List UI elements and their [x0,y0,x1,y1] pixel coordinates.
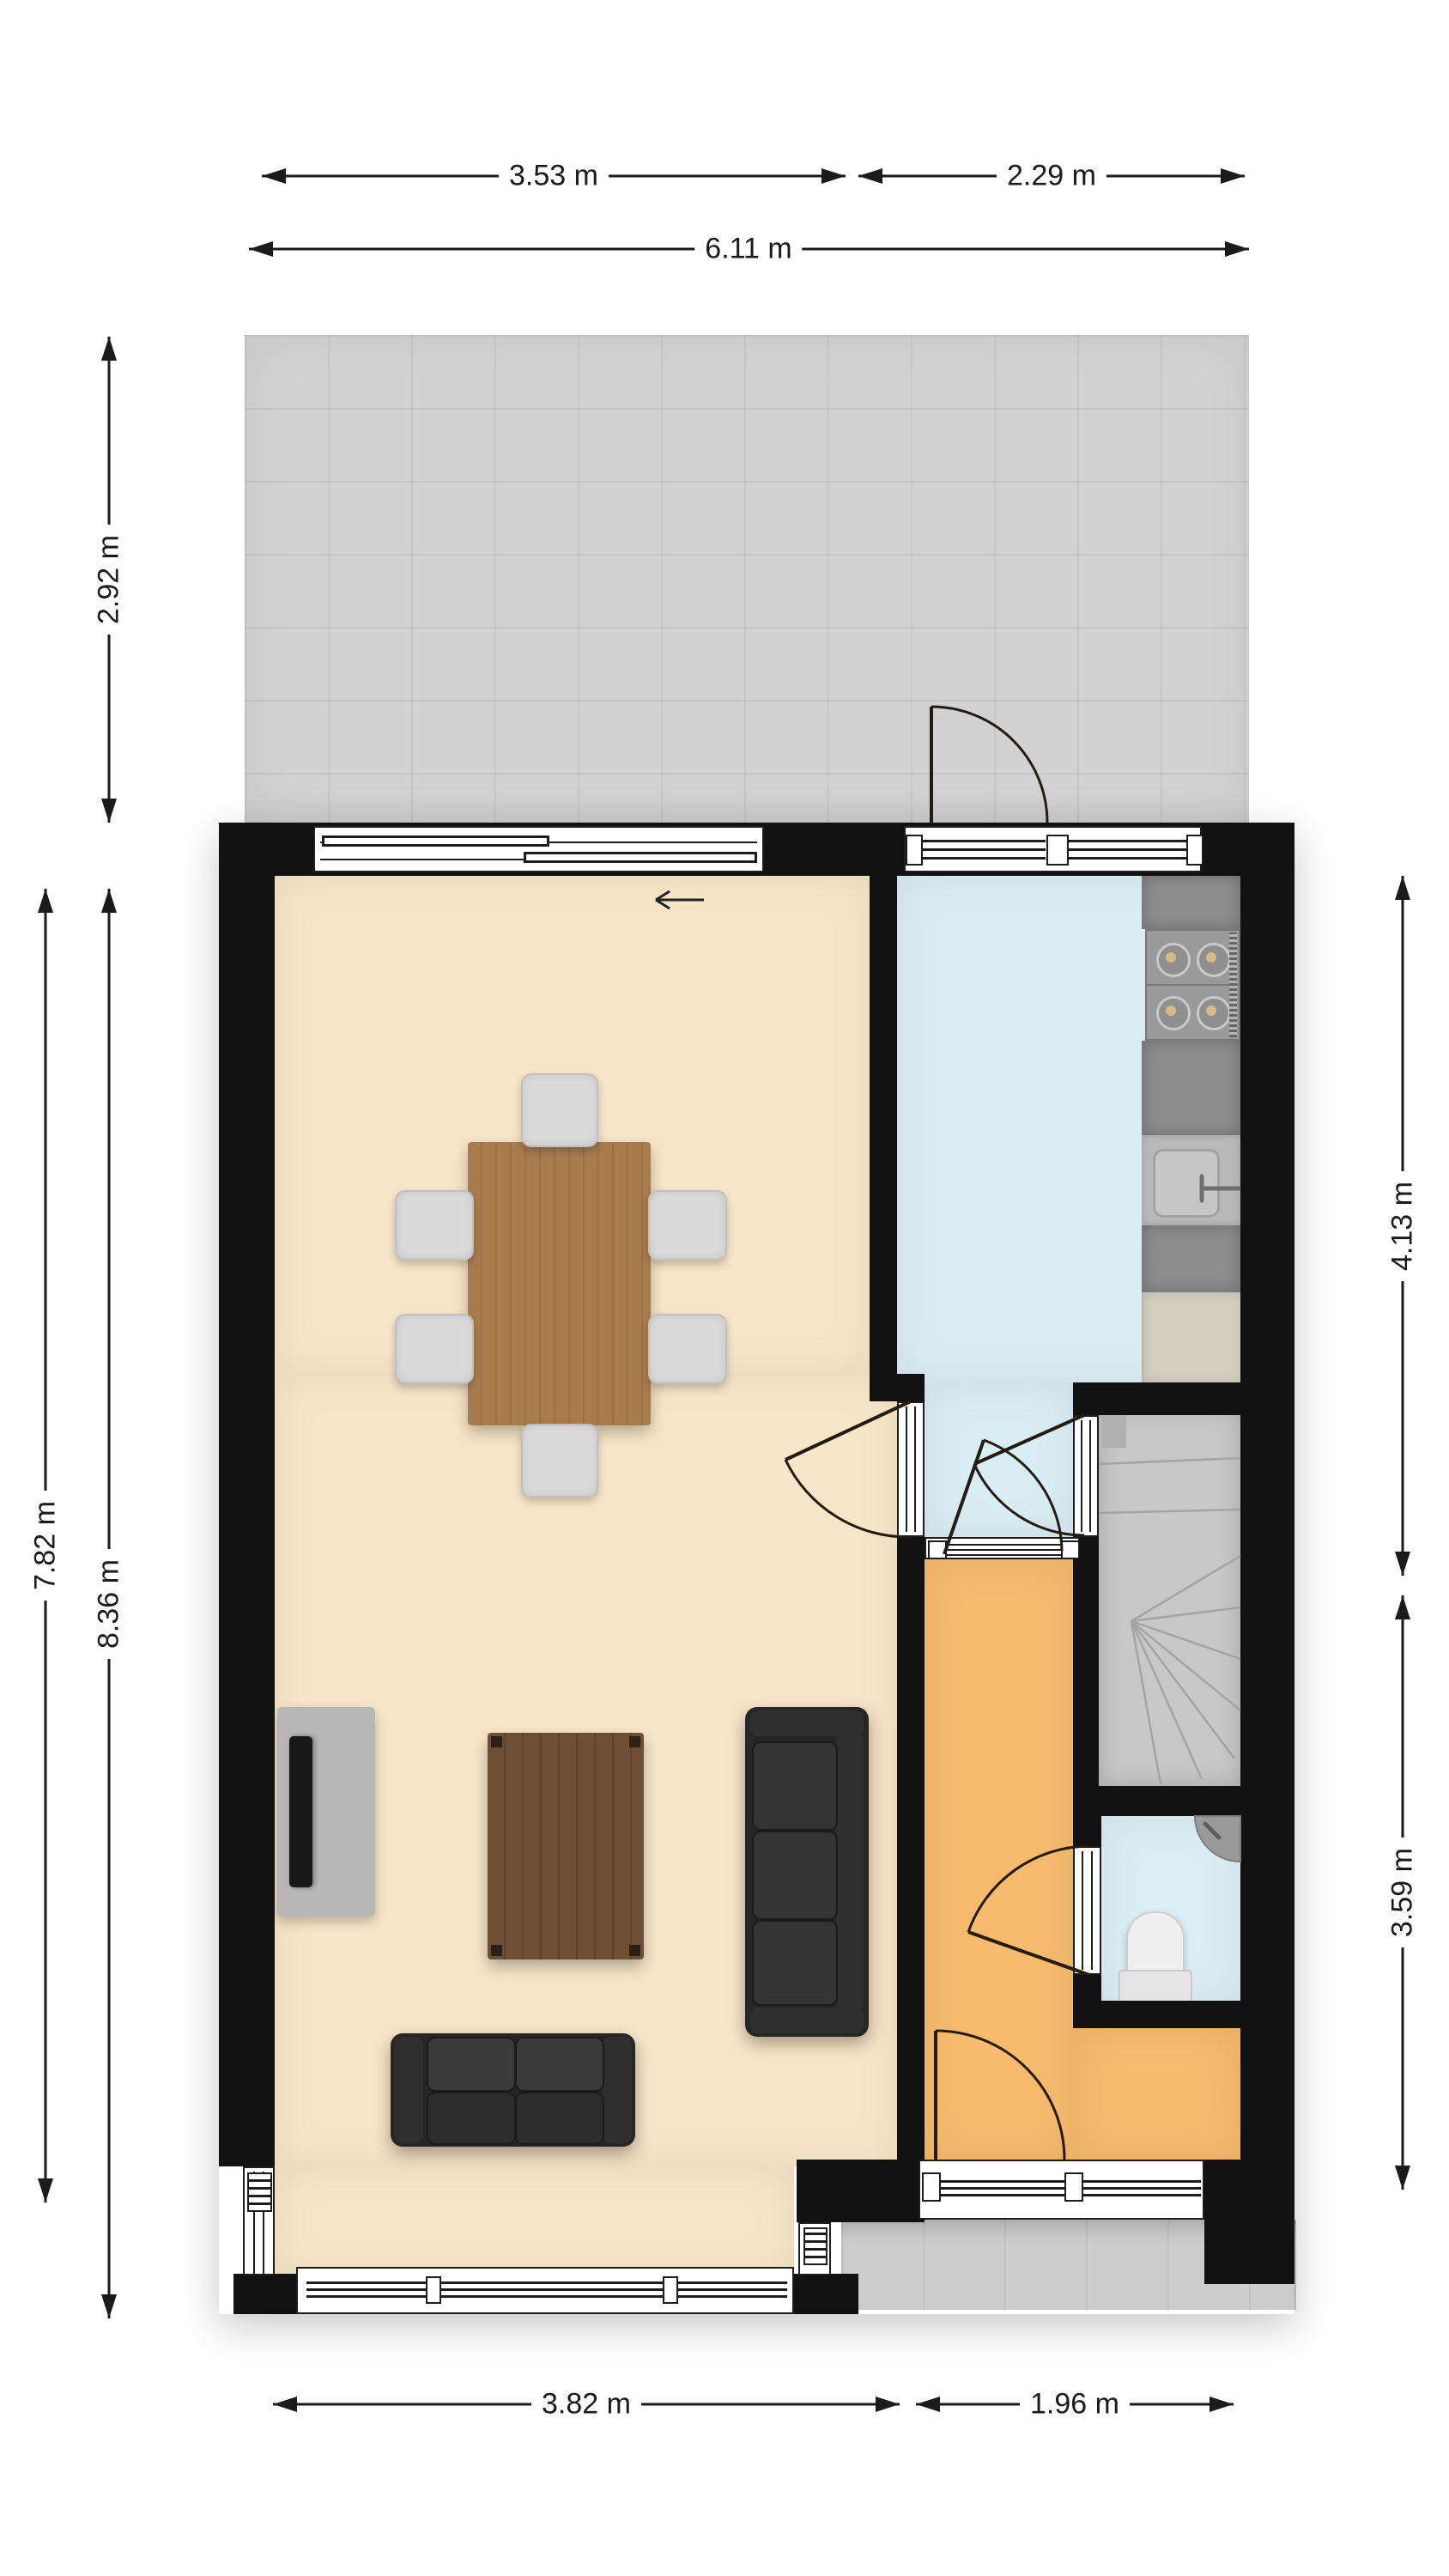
sofa-back-cushion [427,2037,516,2092]
three-seat-sofa [745,1707,869,2037]
wall-right [1240,823,1294,2284]
sofa-back-cushion [515,2037,604,2092]
hallway-floor [925,1559,1073,2160]
sofa-cushion [752,1831,838,1920]
door-jamb-block [1061,1540,1080,1559]
door-jamb-block [928,1540,947,1559]
kitchen-counter-low [1142,1225,1240,1292]
burner-cap [1206,952,1216,963]
front-door-pier-right [1204,2160,1279,2284]
dining-chair [648,1314,727,1384]
dining-chair [521,1073,598,1147]
living-room-bay-floor [275,2166,794,2275]
bay-window-band [296,2267,794,2314]
dim-bottom-living: 3.82 m [531,2386,641,2423]
floor-plan-canvas: 3.53 m 2.29 m 6.11 m 2.92 m 7.82 m 8.36 … [0,0,1449,2576]
wall-left [219,823,275,2166]
dim-top-partial-left: 3.53 m [499,158,609,195]
sliding-window [313,826,764,872]
sofa-backrest [836,1733,864,2011]
toilet-tank [1119,1970,1192,2002]
wall-stairs-left [1073,1537,1099,1786]
window-mullion [1046,835,1069,866]
bay-pier-left [233,2274,296,2314]
wall-toilet-left-lower [1073,1975,1101,2002]
kitchen-counter-top [1142,876,1240,929]
wall-toilet-left-upper [1073,1816,1101,1846]
kitchen-sink-unit [1142,1135,1240,1225]
sliding-panel [524,852,757,863]
front-door-band [919,2160,1204,2220]
burner-cap [1166,952,1176,963]
toilet-door-jamb [1073,1846,1101,1975]
table-bracket [491,1736,502,1747]
hallway-floor-lower [1073,2028,1240,2160]
dining-chair [395,1190,474,1261]
dim-kitchen-depth: 4.13 m [1385,1171,1422,1281]
dining-table [468,1142,651,1425]
dim-hall-depth: 3.59 m [1385,1838,1422,1947]
sofa-armrest [394,2037,423,2143]
table-bracket [491,1945,502,1956]
coffee-table [488,1733,644,1959]
sofa-cushion [752,1920,838,2006]
wall-stairs-bottom [1073,1786,1240,1816]
window-mullion [663,2276,678,2304]
window-mullion [1186,835,1203,866]
dim-bottom-hall: 1.96 m [1020,2386,1130,2423]
meter-hatch [247,2172,272,2212]
burner-cap [1166,1005,1176,1016]
two-seat-sofa [391,2033,635,2147]
dining-chair [648,1190,727,1261]
door-jamb-block [1064,2172,1083,2202]
sofa-seat [427,2092,516,2145]
living-door-jamb [897,1401,925,1537]
dining-chair [395,1314,474,1384]
burner-cap [1206,1005,1216,1016]
bay-pier-right [794,2274,858,2314]
bay-side-window-left [243,2166,275,2275]
kitchen-counter-mid [1142,1041,1240,1135]
kitchen-window [904,826,1202,872]
stove-vent [1229,933,1237,1037]
wall-toilet-bottom [1073,2001,1240,2028]
stairs-door-jamb [1073,1415,1099,1537]
kitchen-cabinet [1142,1292,1242,1382]
dim-top-partial-right: 2.29 m [997,158,1106,195]
table-bracket [629,1945,640,1956]
bay-side-window-right [798,2222,831,2275]
wall-living-kitchen [870,876,897,1374]
dim-terrace-depth: 2.92 m [91,525,128,635]
meter-hatch [803,2227,828,2265]
wall-stairs-top [1073,1382,1240,1415]
kitchen-corridor-floor [925,1382,1073,1537]
kitchen-hall-door-band [925,1537,1080,1559]
window-mullion [906,835,923,866]
stairs-floor [1099,1408,1240,1786]
door-jamb-block [922,2172,941,2202]
stove [1145,929,1240,1041]
dining-chair [521,1424,598,1498]
dim-house-inner-depth: 7.82 m [27,1491,64,1601]
sliding-panel [322,835,549,847]
wall-step [870,1374,925,1401]
dim-top-total: 6.11 m [694,231,802,268]
sofa-armrest [750,2008,864,2033]
table-bracket [629,1736,640,1747]
sofa-seat [515,2092,604,2145]
terrace-floor [245,335,1249,823]
window-mullion [426,2276,441,2304]
stairs-newel [1102,1412,1126,1448]
wall-bay-ne [797,2160,925,2222]
sofa-cushion [752,1741,838,1831]
stove-divider [1147,984,1239,986]
tv [289,1736,312,1887]
wall-living-hall [897,1537,925,2166]
sink-basin [1153,1149,1220,1218]
toilet-bowl [1126,1911,1185,1978]
sofa-armrest [750,1710,864,1736]
dim-house-outer-depth: 8.36 m [91,1549,128,1659]
sofa-armrest [603,2037,632,2143]
